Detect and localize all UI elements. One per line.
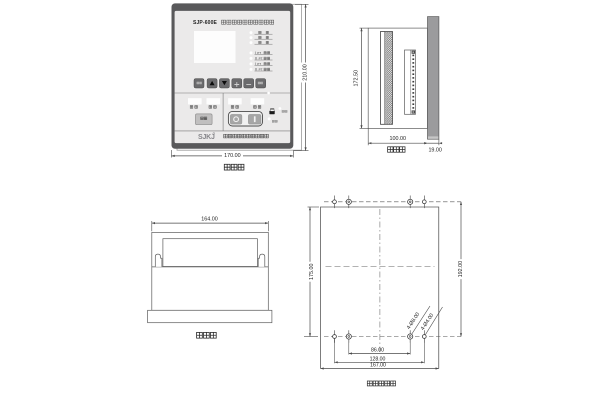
svg-text:SJKJ: SJKJ bbox=[198, 134, 215, 141]
svg-text:PT: PT bbox=[257, 51, 261, 55]
svg-text:170.00: 170.00 bbox=[224, 153, 241, 159]
svg-text:164.00: 164.00 bbox=[201, 217, 218, 223]
svg-text:PT: PT bbox=[259, 57, 263, 61]
svg-text:175.00: 175.00 bbox=[309, 264, 315, 281]
svg-text:PT: PT bbox=[259, 68, 263, 72]
svg-text:86.00: 86.00 bbox=[371, 348, 384, 354]
svg-text:210.00: 210.00 bbox=[302, 64, 308, 81]
svg-text:19.00: 19.00 bbox=[428, 148, 442, 154]
svg-text:PT: PT bbox=[257, 62, 261, 66]
svg-text:167.00: 167.00 bbox=[370, 363, 386, 369]
svg-text:SJP-600E: SJP-600E bbox=[193, 20, 218, 26]
svg-text:128.00: 128.00 bbox=[370, 357, 386, 363]
svg-text:172.50: 172.50 bbox=[354, 70, 360, 87]
svg-text:192.00: 192.00 bbox=[458, 261, 464, 278]
svg-text:100.00: 100.00 bbox=[390, 136, 407, 142]
